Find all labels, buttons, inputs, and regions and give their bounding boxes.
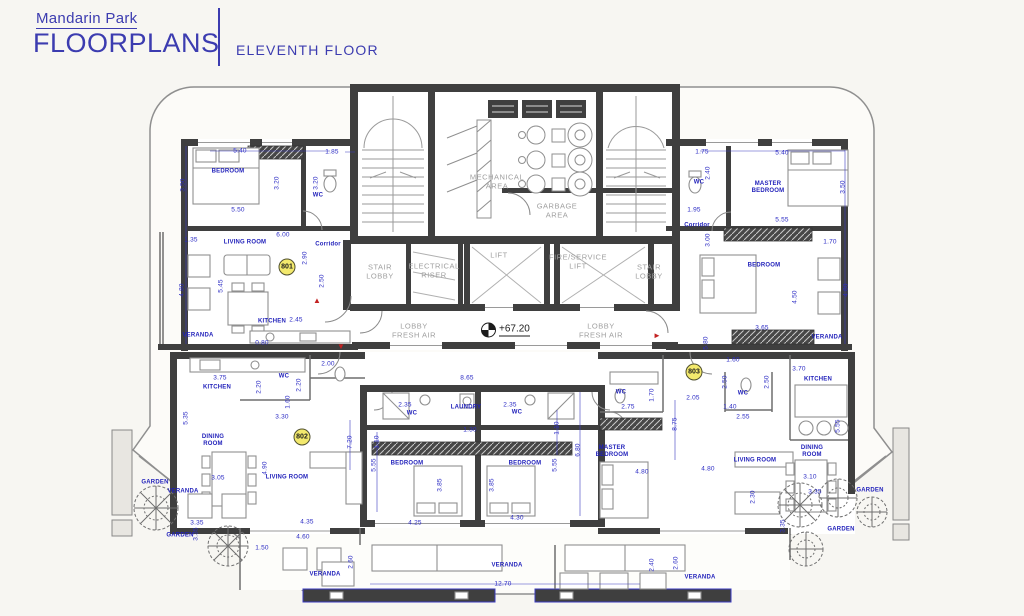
level-target-icon bbox=[481, 323, 496, 338]
tree-icon bbox=[857, 497, 887, 527]
level-value: +67.20 bbox=[499, 324, 530, 337]
tree-icon bbox=[789, 532, 823, 566]
tree-icon bbox=[208, 526, 248, 566]
level-marker: +67.20 bbox=[481, 323, 530, 338]
floorplan-page: Mandarin Park FLOORPLANS ELEVENTH FLOOR bbox=[0, 0, 1024, 616]
tree-icon bbox=[134, 486, 178, 530]
tree-icon bbox=[778, 483, 822, 527]
floorplan-drawing bbox=[0, 0, 1024, 616]
